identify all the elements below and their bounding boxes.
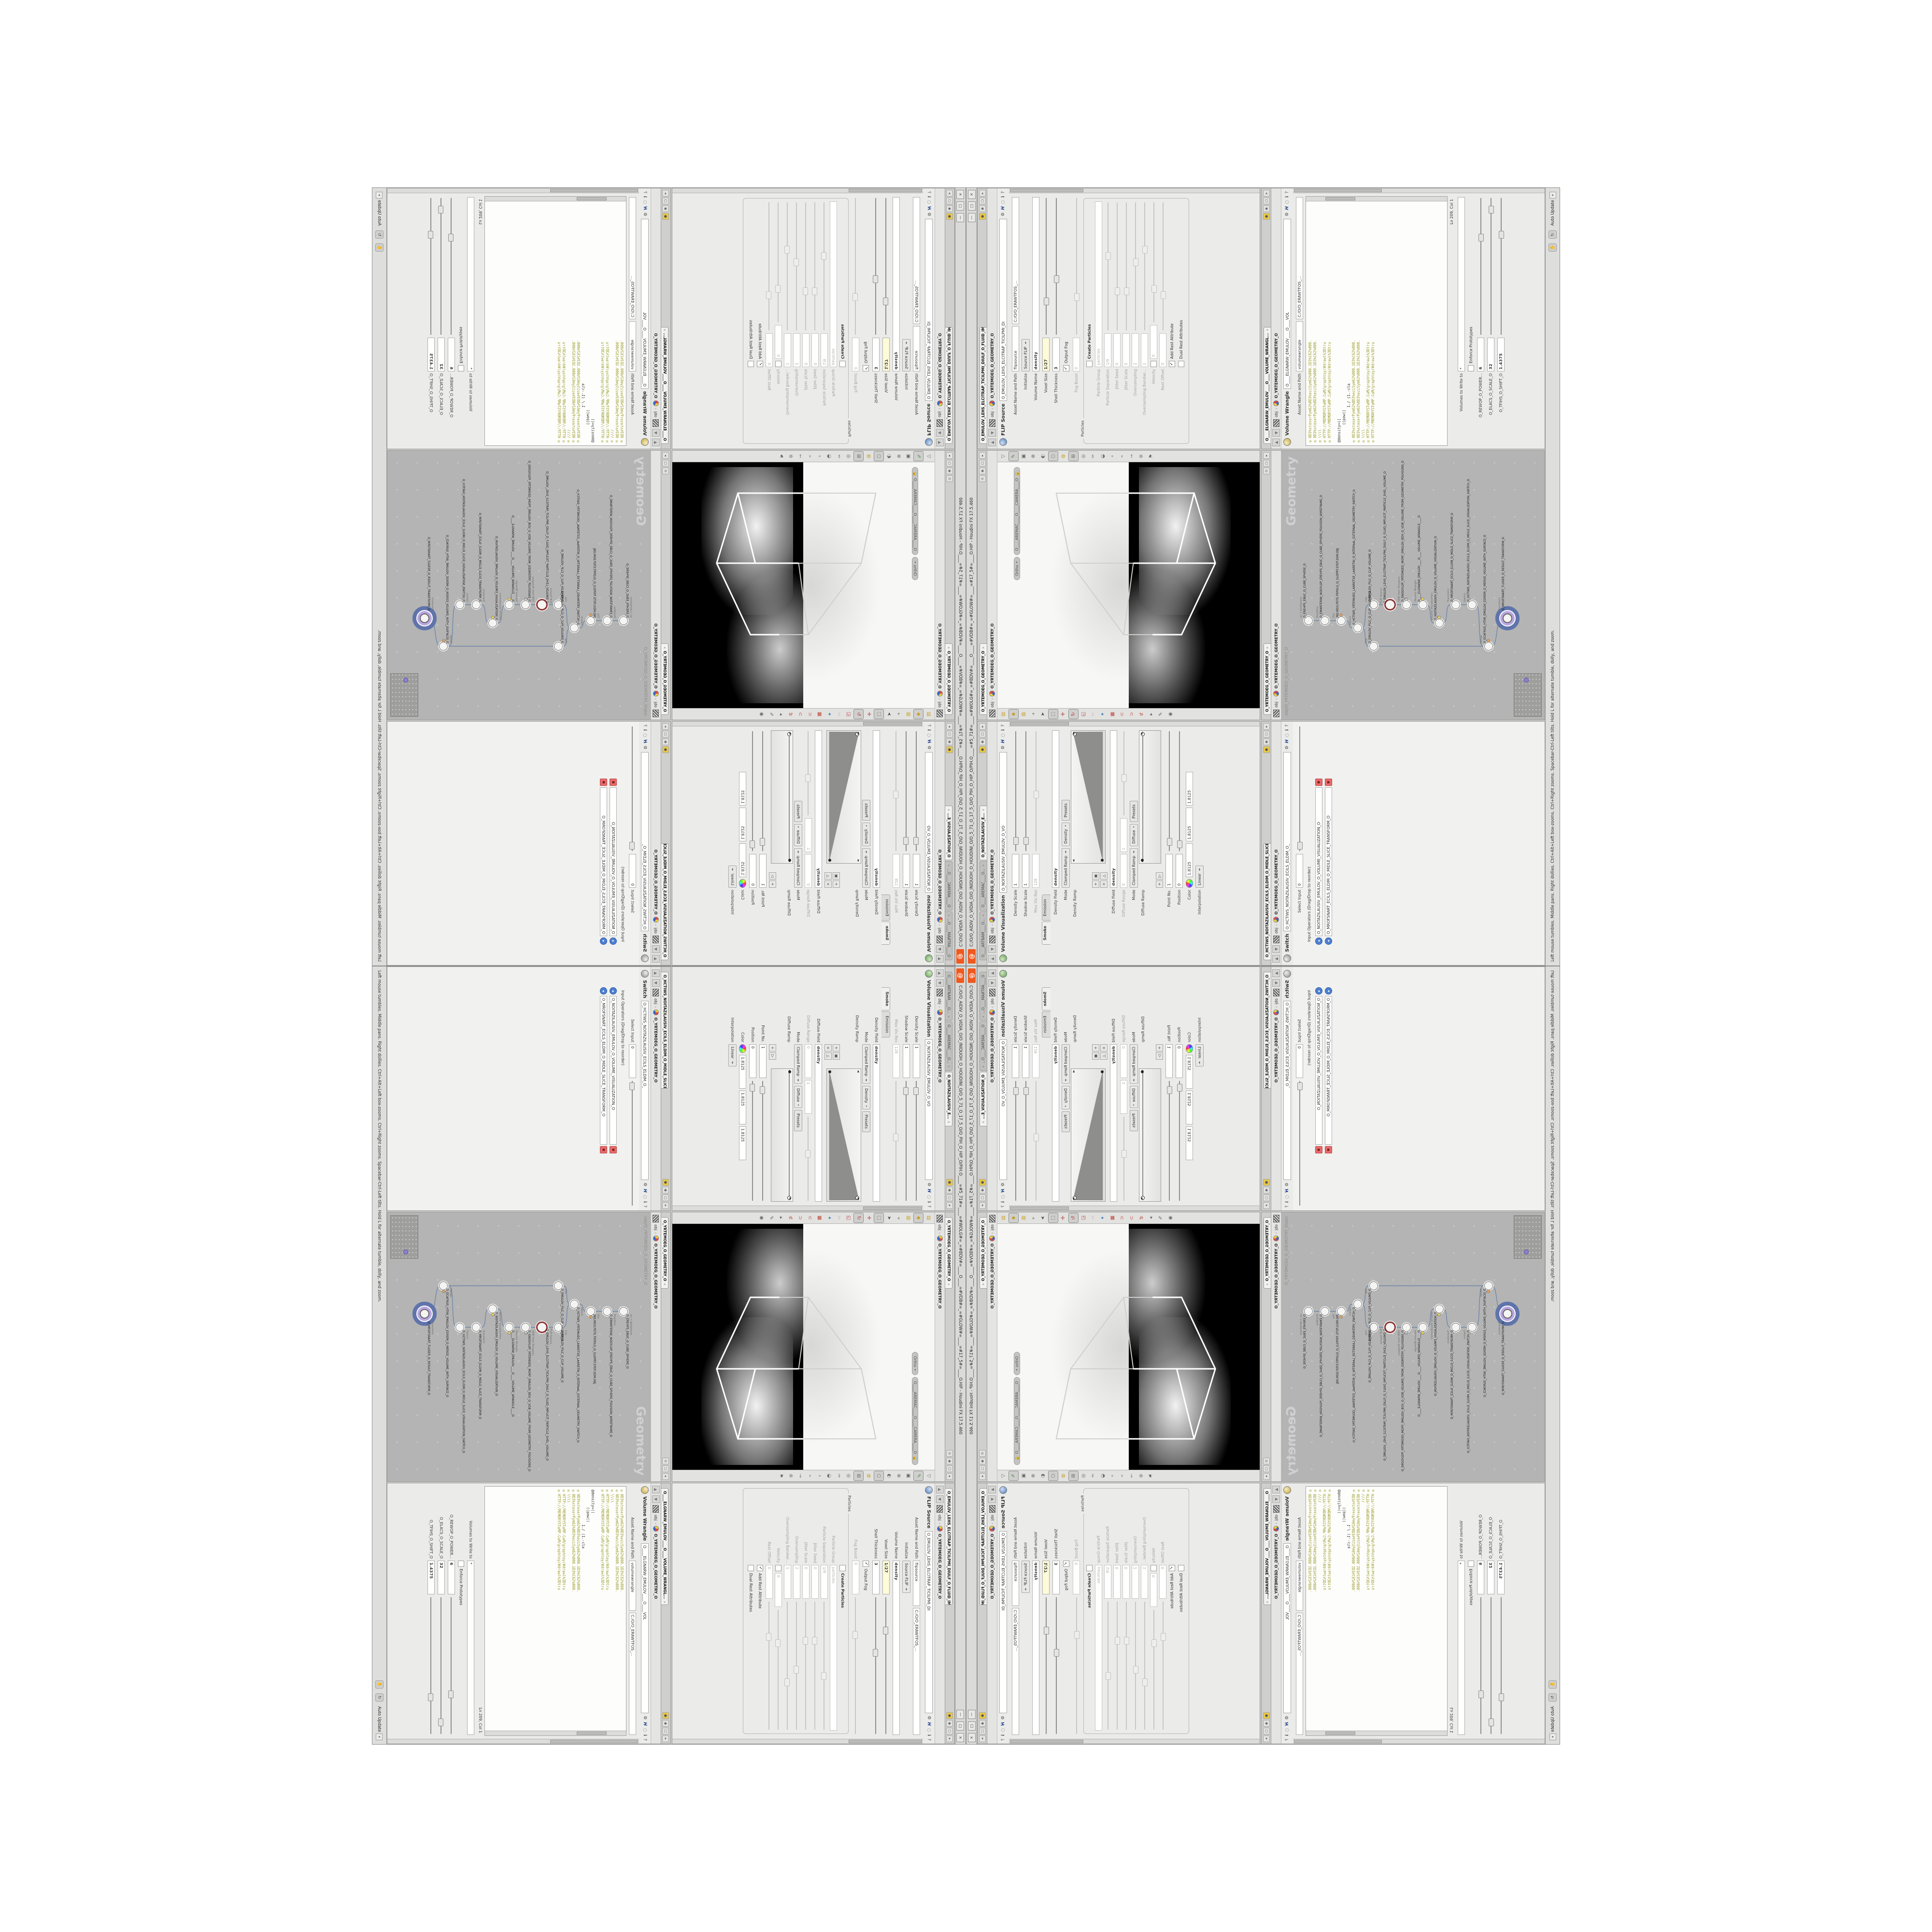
target-dropdown[interactable]: Density▾ [1062, 823, 1070, 846]
param-field[interactable]: 32 [438, 338, 445, 371]
pane-controls[interactable]: ●◉▢▸ [1263, 1179, 1271, 1209]
axis-tool-icon[interactable]: ✦ [824, 710, 834, 719]
search-icon[interactable]: ◌ [642, 733, 647, 737]
nav-down-icon[interactable]: ▼ [1272, 945, 1280, 953]
pane-tab[interactable]: O_YRTEMOEG_O_GEOMETRY_O✕ [980, 1217, 987, 1289]
rotate-tool-icon[interactable]: ↻ [853, 1213, 864, 1223]
initialize-dropdown[interactable]: Source FLIP◂▸ [1022, 339, 1030, 371]
palette-display-icon[interactable]: ◒ [1098, 452, 1108, 461]
target-icon[interactable]: ◉ [979, 468, 986, 474]
param-slider[interactable] [750, 1080, 756, 1202]
param-field[interactable]: 1/9 [1104, 1565, 1111, 1599]
scrollbar[interactable] [1009, 722, 1260, 726]
wrench-options-icon[interactable]: ⌁ [1118, 1471, 1127, 1480]
breadcrumb-root[interactable]: obj [938, 928, 942, 934]
pane-menu-icon[interactable]: ▸ [979, 1202, 986, 1209]
interpolation-dropdown[interactable]: Linear◂▸ [728, 1044, 737, 1066]
maximize-pane-icon[interactable]: ▢ [1263, 731, 1270, 738]
dual-rest-checkbox[interactable] [1178, 1565, 1184, 1571]
play-more-icon[interactable]: ▸ [1147, 710, 1156, 719]
pane-tab[interactable]: O____AREMAC____O...✕ [945, 1022, 952, 1070]
scrollbar[interactable] [672, 1739, 923, 1744]
tab-close-icon[interactable]: ✕ [947, 1121, 950, 1123]
node-flag-icon[interactable] [1437, 1313, 1441, 1316]
camera-pill[interactable]: O____AREMAC____O____CAMERA____O🔒 [912, 467, 918, 555]
gear-icon[interactable]: ⚙ [1001, 746, 1006, 750]
ramp-grid-icon[interactable]: ▣ [833, 872, 840, 880]
target-dropdown[interactable]: Density▾ [862, 823, 870, 846]
pane-tab[interactable]: O_YRTEMOEG_O_GEOMETRY_O✕ [945, 1217, 952, 1289]
breadcrumb-node[interactable]: O_YRTEMOEG_O_GEOMETRY_O [990, 850, 994, 915]
param-field[interactable]: 3 [1052, 1561, 1060, 1594]
nav-up-icon[interactable]: ▲ [936, 1486, 944, 1493]
breadcrumb-node[interactable]: O_YRTEMOEG_O_GEOMETRY_O [938, 1534, 942, 1599]
snap-multi-icon[interactable]: ⊄ [786, 710, 795, 719]
param-slider[interactable] [1114, 1601, 1121, 1731]
info-icon[interactable]: ℹ [926, 729, 931, 731]
pane-menu-icon[interactable]: ▸ [946, 1473, 953, 1480]
snap-grid-icon[interactable]: ▦ [815, 1213, 824, 1222]
snap-point-icon[interactable]: ⊂ [805, 1213, 814, 1222]
maximize-pane-icon[interactable]: ▢ [979, 731, 986, 738]
param-field[interactable]: 1 [1012, 1044, 1019, 1078]
add-rest-checkbox[interactable]: ✓ [757, 1565, 763, 1571]
param-field[interactable]: 0 [811, 333, 819, 367]
pin-icon[interactable]: ⊙ [946, 475, 953, 482]
minimize-button[interactable]: — [957, 1710, 965, 1719]
collapse-tri-icon[interactable]: ▽ [924, 1471, 933, 1480]
breadcrumb-root[interactable]: obj [654, 1224, 658, 1230]
network-node[interactable]: Volume VisualizationO_NOITAZILAUSIV_EMUL… [1435, 619, 1444, 627]
layout-icon[interactable]: ● [979, 213, 986, 220]
pin-icon[interactable]: ⊙ [1263, 1458, 1270, 1464]
update-mode-selector[interactable]: Auto Update▾ [1549, 1706, 1556, 1740]
node-name-field[interactable]: O_EMULOV_LEHS_ELCITRAP_TICILPMI_DI [999, 219, 1007, 401]
mode-dropdown[interactable]: Clamped Ramp◂▸ [794, 848, 802, 888]
param-field[interactable]: 2 [793, 333, 800, 367]
scrollbar[interactable] [387, 1739, 639, 1744]
asset-path-field[interactable]: C:/O/O_ERAWTFOS_... [1012, 1608, 1019, 1735]
param-slider[interactable] [760, 730, 767, 852]
presets-button[interactable]: Presets [794, 801, 802, 822]
asset-name-field[interactable]: volumewrangle [1296, 1561, 1303, 1611]
param-slider[interactable] [438, 1596, 445, 1735]
color-g-field[interactable]: 1.8125 [739, 1091, 746, 1124]
tab-close-icon[interactable]: ✕ [947, 1283, 950, 1286]
houdini-help-icon[interactable]: H [1001, 206, 1006, 210]
lock-camera-icon[interactable]: ▣ [1019, 1471, 1028, 1480]
param-field[interactable]: 0 [1122, 333, 1130, 367]
search-icon[interactable]: ◌ [926, 200, 931, 204]
help-icon[interactable]: ? [926, 1738, 931, 1741]
network-node[interactable]: an_CubeSphereO_EREHPS_EBUC_O_CUBE_SPHERE… [619, 1307, 628, 1316]
scale-tool-icon[interactable]: ◱ [844, 710, 853, 719]
density-ramp-widget[interactable]: ◄► [826, 730, 861, 864]
param-field[interactable]: 0 [1150, 1573, 1157, 1607]
network-node[interactable]: TransformO_MROFSNART_ECILS_ELDIM_O_MIDLE… [472, 1323, 481, 1332]
create-particles-checkbox[interactable] [839, 361, 846, 367]
param-field[interactable]: 2 [1132, 333, 1139, 367]
nav-down-icon[interactable]: ▼ [936, 945, 944, 953]
asset-path-field[interactable]: C:/O/O_ERAWTFOS_... [629, 1613, 636, 1735]
headlight-icon[interactable]: ◍ [1059, 452, 1068, 461]
param-field[interactable]: 0 [1296, 854, 1303, 888]
maximize-pane-icon[interactable]: ▢ [946, 731, 953, 738]
camera-pill[interactable]: O____AREMAC____O____CAMERA____O🔒 [1014, 1377, 1020, 1465]
interpolation-dropdown[interactable]: Linear◂▸ [728, 866, 737, 888]
pane-controls[interactable]: ●◉▢▸ [979, 190, 987, 220]
scrollbar[interactable] [672, 1206, 923, 1210]
param-field[interactable]: 1 [805, 818, 812, 852]
param-slider[interactable] [805, 1116, 812, 1202]
flag-display-icon[interactable]: ⚑ [1147, 452, 1156, 461]
mode-dropdown[interactable]: Clamped Ramp◂▸ [794, 1044, 802, 1084]
scrollbar[interactable] [1009, 1206, 1260, 1210]
scrollbar[interactable] [672, 722, 923, 726]
maximize-pane-icon[interactable]: ▢ [946, 460, 953, 467]
param-field[interactable]: density [1052, 1044, 1059, 1202]
operator-path-field[interactable]: O_MROFSNART_ECILS_ELDIM_O_MIDLE_SLICE_TR… [600, 787, 608, 936]
enforce-prototypes-checkbox[interactable] [1468, 365, 1474, 371]
sketch-render-icon[interactable]: ✎ [767, 710, 776, 719]
flat-sphere-icon[interactable]: ○ [874, 1471, 884, 1481]
pane-tab[interactable]: O_EMULOV_LEHS_ELCITRAP_TICILPMI_DIULF_O_… [945, 1488, 952, 1605]
asset-path-field[interactable]: C:/O/O_ERAWTFOS_... [1296, 1613, 1303, 1735]
help-icon[interactable]: ? [1001, 724, 1006, 727]
probe-options-icon[interactable]: ⊸ [1127, 1471, 1136, 1480]
pane-tab[interactable]: O_NOITAZILAUSIV_E...✕ [945, 1072, 952, 1126]
pane-menu-icon[interactable]: ▸ [946, 1202, 953, 1209]
asset-name-field[interactable]: volumewrangle [629, 1561, 636, 1611]
breadcrumb-node[interactable]: O_YRTEMOEG_O_GEOMETRY_O [990, 1243, 994, 1308]
reorder-icon[interactable]: ◂ [600, 938, 608, 945]
param-slider[interactable] [913, 730, 920, 852]
flag-display-icon[interactable]: ⚑ [776, 452, 785, 461]
nav-up-icon[interactable]: ▲ [988, 969, 996, 977]
param-field[interactable]: 1/27 [882, 338, 890, 371]
info-icon[interactable]: ℹ [642, 1201, 647, 1203]
pane-tab[interactable]: O_YRTEMOEG_O_GEOMETRY_O✕ [980, 643, 987, 715]
nav-down-icon[interactable]: ▼ [936, 429, 944, 437]
breadcrumb-root[interactable]: obj [1274, 1224, 1279, 1230]
diffuse-ramp-widget[interactable]: ◄► [771, 1068, 793, 1202]
param-field[interactable]: 3 [872, 1561, 880, 1594]
param-slider[interactable] [766, 1601, 773, 1731]
network-node[interactable]: ClipO_EMULOV_PILC_O_CLIP_VOLUME_O [554, 1281, 563, 1290]
help-icon[interactable]: ? [1285, 724, 1290, 727]
orbit-view-icon[interactable]: ◎ [844, 1471, 853, 1480]
help-icon[interactable]: ? [1285, 191, 1290, 194]
add-rest-checkbox[interactable]: ✓ [1169, 361, 1175, 367]
link-icon[interactable]: ◉ [662, 205, 669, 212]
info-icon[interactable]: ℹ [1285, 196, 1290, 198]
param-slider[interactable] [1073, 197, 1080, 336]
search-icon[interactable]: ◌ [1285, 733, 1290, 737]
layout-pane-icon[interactable]: ▤ [924, 1213, 933, 1222]
breadcrumb-node[interactable]: O_YRTEMOEG_O_GEOMETRY_O [654, 333, 658, 398]
lock-camera-icon[interactable]: ▣ [904, 452, 913, 461]
tab-close-icon[interactable]: ✕ [663, 646, 666, 649]
param-field[interactable]: density [1032, 197, 1039, 371]
layout-pane-icon[interactable]: ▤ [999, 1213, 1008, 1222]
nav-down-icon[interactable]: ▼ [652, 429, 660, 437]
tab-close-icon[interactable]: ✕ [947, 914, 950, 917]
network-node[interactable]: FLIP SourceO_EMULOV_LEHS_ELCITRAP_TICILP… [536, 599, 548, 611]
param-field[interactable]: 1 [1141, 333, 1148, 367]
info-icon[interactable]: ℹ [1001, 1734, 1006, 1736]
layout-diamond-icon[interactable]: ◆ [913, 709, 923, 719]
param-field[interactable]: 1 [1165, 1044, 1173, 1078]
node-name-field[interactable]: O____ELGNARW_EMULOV____O____VOL [1283, 219, 1291, 389]
param-slider[interactable] [1160, 201, 1166, 331]
orbit-view-icon[interactable]: ◎ [1079, 1471, 1088, 1480]
breadcrumb-root[interactable]: obj [1274, 928, 1279, 934]
param-field[interactable]: 1/9 [821, 1565, 828, 1599]
link-icon[interactable]: ◉ [979, 739, 986, 745]
enforce-prototypes-checkbox[interactable] [1468, 1561, 1474, 1567]
brush-display-icon[interactable]: ✑ [1089, 1471, 1098, 1480]
maximize-pane-icon[interactable]: ▢ [946, 198, 953, 204]
param-slider[interactable] [784, 201, 791, 331]
translate-tool-icon[interactable]: ✛ [864, 1213, 873, 1222]
remove-operator-icon[interactable]: ✖ [600, 1146, 608, 1153]
link-icon[interactable]: ◉ [1263, 1187, 1270, 1193]
breadcrumb-root[interactable]: obj [938, 412, 942, 417]
add-rest-checkbox[interactable]: ✓ [1169, 1565, 1175, 1571]
info-icon[interactable]: ℹ [642, 729, 647, 731]
param-slider[interactable] [1114, 201, 1121, 331]
back-arrow-icon[interactable]: ◂ [1029, 1213, 1038, 1222]
projection-pill[interactable]: Ortho▾ [1014, 1352, 1020, 1375]
asset-name-field[interactable]: flipsource [1012, 326, 1019, 371]
orbit-view-icon[interactable]: ◎ [844, 452, 853, 461]
network-node[interactable]: TransformO_MROFSNART_TLUSER_O_RESULT_TRA… [420, 613, 429, 623]
pane-controls[interactable]: ●◉▢▸ [979, 723, 987, 753]
minimize-button[interactable]: — [968, 1710, 976, 1719]
gear-icon[interactable]: ⚙ [926, 213, 931, 216]
param-field[interactable]: 1.4375 [427, 338, 435, 371]
param-field[interactable]: 128 [1032, 854, 1039, 888]
update-mode-selector[interactable]: Auto Update▾ [376, 192, 383, 226]
param-slider[interactable] [1023, 1080, 1029, 1202]
remove-operator-icon[interactable]: ✖ [610, 779, 617, 786]
reorder-icon[interactable]: ◂ [610, 987, 617, 994]
param-field[interactable]: 128 [893, 854, 900, 888]
param-slider[interactable] [1073, 1596, 1080, 1735]
network-node[interactable]: PolyWireO_EMARFERIW_NOGYLOP_EREHPS_EBUC_… [1321, 1307, 1329, 1316]
maximize-pane-icon[interactable]: ▢ [946, 1465, 953, 1472]
nav-down-icon[interactable]: ▼ [988, 429, 996, 437]
network-node[interactable]: PolyWireO_EMARFERIW_NOGYLOP_EREHPS_EBUC_… [603, 1307, 611, 1316]
maximize-pane-icon[interactable]: ▢ [1263, 1728, 1270, 1734]
gear-icon[interactable]: ⚙ [1285, 1182, 1290, 1186]
pane-menu-icon[interactable]: ▸ [1263, 723, 1270, 730]
snip-tool-icon[interactable]: ✂ [834, 710, 843, 719]
pane-tab[interactable]: O_YRTEMOEG_O_GEOMETRY_O✕ [1264, 1217, 1271, 1289]
node-flag-icon[interactable] [491, 616, 495, 619]
node-name-field[interactable]: O_EMULOV_LEHS_ELCITRAP_TICILPMI_DI [999, 1531, 1007, 1714]
play-more-icon[interactable]: ▸ [776, 1213, 785, 1222]
pin-icon[interactable]: ⊙ [662, 1458, 669, 1464]
node-name-field[interactable]: O_HCTIWS_NOITAZILAUSIV_ECILS_ELDIM_O_ [641, 752, 649, 932]
ramp-add-icon[interactable]: + [769, 1044, 776, 1051]
network-node[interactable]: PolyWireO_EMARFERIW_NOGYLOP_EREHPS_EBUC_… [603, 616, 611, 625]
network-minimap[interactable] [390, 1215, 418, 1259]
pane-controls[interactable]: ⊙◉▢▸ [945, 452, 953, 482]
scrollbar[interactable] [1293, 1739, 1545, 1744]
color-r-field[interactable]: 1.8125 [1186, 843, 1193, 877]
color-b-field[interactable]: 1.8125 [739, 772, 746, 806]
reorder-icon[interactable]: ◂ [610, 938, 617, 945]
network-node[interactable]: Volume WrangleO____ELGNARW_EMULOV____O__… [505, 1323, 513, 1332]
tab-close-icon[interactable]: ✕ [663, 329, 666, 331]
network-node[interactable]: TransformO_MROFSNART_ECILS_ELDIM_O_MIDLE… [1451, 600, 1460, 609]
scale-tool-icon[interactable]: ◱ [844, 1213, 853, 1222]
pane-controls[interactable]: ⊙◉▢▸ [945, 1450, 953, 1480]
presets-button[interactable]: Presets [794, 1110, 802, 1131]
snap-grid-icon[interactable]: ▦ [1108, 1213, 1117, 1222]
node-flag-icon[interactable] [1421, 1331, 1424, 1335]
param-slider[interactable] [1053, 1596, 1060, 1735]
link-icon[interactable]: ◉ [1263, 205, 1270, 212]
tab-close-icon[interactable]: ✕ [663, 1283, 666, 1286]
nav-up-icon[interactable]: ▲ [1272, 1486, 1280, 1493]
flipbook-render-icon[interactable]: ◉ [1166, 1213, 1175, 1222]
pane-menu-icon[interactable]: ▸ [979, 452, 986, 459]
color-swatch[interactable] [1186, 1044, 1193, 1053]
tab-emission[interactable]: Emission [1042, 1011, 1051, 1037]
pane-tab[interactable]: O_NOITAZILAUSIV_E...✕ [945, 806, 952, 860]
presets-button[interactable]: Presets [1130, 801, 1138, 822]
param-slider[interactable] [1023, 730, 1029, 852]
layout-icon[interactable]: ● [946, 1179, 953, 1186]
maximize-pane-icon[interactable]: ▢ [979, 198, 986, 204]
palette-display-icon[interactable]: ◒ [824, 452, 834, 461]
param-slider[interactable] [1160, 1601, 1166, 1731]
breadcrumb-root[interactable]: obj [990, 702, 994, 708]
gear-icon[interactable]: ⚙ [642, 1182, 647, 1186]
param-slider[interactable] [794, 201, 800, 331]
param-slider[interactable] [852, 1596, 859, 1735]
probe-options-icon[interactable]: ⊸ [796, 1471, 805, 1480]
link-icon[interactable]: ◉ [946, 205, 953, 212]
sketch-render-icon[interactable]: ✎ [1156, 1213, 1165, 1222]
houdini-help-icon[interactable]: H [926, 739, 931, 743]
pin-icon[interactable]: ⊙ [946, 1450, 953, 1457]
palette-display-icon[interactable]: ◒ [1098, 1471, 1108, 1480]
layout-pane-icon[interactable]: ▤ [999, 710, 1008, 719]
node-name-field[interactable]: O_NOITAZILAUSIV_EMULOV_O_VO [925, 752, 933, 893]
layout-icon[interactable]: ● [1263, 1179, 1270, 1186]
param-field[interactable]: density [815, 1044, 822, 1202]
network-canvas[interactable]: /obj/O_YRTEMOEG_O_GEOMETRY_O Geometry an… [1281, 1212, 1545, 1481]
scrollbar[interactable] [1293, 188, 1545, 193]
ramp-grid-icon[interactable]: ▣ [1092, 1052, 1099, 1060]
pane-tab[interactable]: O____AREMAC____O...✕ [980, 1022, 987, 1070]
velocity-checkbox[interactable] [1151, 361, 1157, 367]
input-operator-row[interactable]: ◂O_MROFSNART_ECILS_ELDIM_O_MIDLE_SLICE_T… [1323, 968, 1333, 1209]
target-dropdown[interactable]: Diffuse▾ [1130, 824, 1138, 846]
pane-tab[interactable]: O_NOITAZILAUSIV_E...✕ [980, 1072, 987, 1126]
breadcrumb-node[interactable]: O_YRTEMOEG_O_GEOMETRY_O [938, 333, 942, 398]
search-icon[interactable]: ◌ [642, 1195, 647, 1199]
remove-operator-icon[interactable]: ✖ [610, 1146, 617, 1153]
reorder-icon[interactable]: ◂ [1315, 987, 1322, 994]
network-node[interactable]: MergeO_ECAFRUS_HTIW_EMULOV_EGREM_O_MERGE… [1484, 642, 1493, 651]
dual-rest-checkbox[interactable] [748, 361, 754, 367]
tab-close-icon[interactable]: ✕ [947, 864, 950, 867]
input-operator-row[interactable]: ◂O_NOITAZILAUSIV_EMULOV_O_VOLUME_VISUALI… [1314, 723, 1323, 964]
param-slider[interactable] [1488, 197, 1494, 336]
recook-icon[interactable]: ↻ [375, 230, 384, 239]
deselect-icon[interactable]: ⊗ [894, 452, 903, 461]
search-icon[interactable]: ◌ [1001, 200, 1006, 204]
param-field[interactable]: 6 [1477, 338, 1484, 371]
remove-operator-icon[interactable]: ✖ [1325, 1146, 1332, 1153]
color-swatch[interactable] [739, 1044, 746, 1053]
pane-controls[interactable]: ●◉▢▸ [661, 1712, 669, 1742]
breadcrumb-node[interactable]: O_YRTEMOEG_O_GEOMETRY_O [654, 624, 658, 689]
flat-sphere-icon[interactable]: ○ [874, 451, 884, 461]
color-b-field[interactable]: 1.8125 [1186, 772, 1193, 806]
houdini-help-icon[interactable]: H [1285, 1189, 1290, 1193]
param-field[interactable]: 0 [1120, 854, 1127, 888]
pane-controls[interactable]: ●◉▢▸ [945, 1179, 953, 1209]
nav-down-icon[interactable]: ▼ [652, 1495, 660, 1503]
pane-menu-icon[interactable]: ▸ [1263, 452, 1270, 459]
lasso-select-icon[interactable]: ⬚ [1048, 709, 1058, 719]
gear-icon[interactable]: ⚙ [926, 746, 931, 750]
pin-icon[interactable]: ⊙ [979, 1450, 986, 1457]
snip-tool-icon[interactable]: ✂ [834, 1213, 843, 1222]
flipbook-render-icon[interactable]: ◉ [757, 1213, 766, 1222]
maximize-pane-icon[interactable]: ▢ [662, 731, 669, 738]
maximize-pane-icon[interactable]: ▢ [1263, 198, 1270, 204]
nav-up-icon[interactable]: ▲ [988, 1486, 996, 1493]
pane-menu-icon[interactable]: ▸ [946, 452, 953, 459]
translate-tool-icon[interactable]: ✛ [1059, 710, 1068, 719]
help-icon[interactable]: ? [926, 191, 931, 194]
network-node[interactable]: FLIP SourceO_EMULOV_LEHS_ELCITRAP_TICILP… [1384, 599, 1396, 611]
ramp-flip-icon[interactable]: △ [824, 1052, 832, 1060]
pane-controls[interactable]: ⊙◉▢▸ [979, 452, 987, 482]
param-field[interactable]: 0 [1122, 1565, 1130, 1599]
manual-cook-icon[interactable]: ✋ [1548, 1680, 1557, 1689]
param-slider[interactable] [812, 201, 819, 331]
param-slider[interactable] [629, 1080, 636, 1207]
maximize-pane-icon[interactable]: ▢ [1263, 460, 1270, 467]
network-node[interactable]: MergeO_ECAFRUS_HTIW_EMULOV_EGREM_O_MERGE… [439, 1281, 448, 1290]
layout-icon[interactable]: ● [979, 1712, 986, 1719]
ramp-delete-icon[interactable]: × [824, 881, 832, 888]
houdini-help-icon[interactable]: H [642, 1189, 647, 1193]
pane-controls[interactable]: ●◉▢▸ [945, 723, 953, 753]
nav-up-icon[interactable]: ▲ [936, 969, 944, 977]
nav-down-icon[interactable]: ▼ [988, 1495, 996, 1503]
search-icon[interactable]: ◌ [1001, 1195, 1006, 1199]
pane-tab[interactable]: O____ELGNARW_EMULOV____O____VOLUME_WRANG… [1264, 327, 1271, 444]
maximize-button[interactable]: ▢ [957, 1721, 965, 1731]
frame-view-icon[interactable]: ⊞ [853, 1471, 864, 1481]
collapse-tri-icon[interactable]: ▽ [924, 452, 933, 461]
network-node[interactable]: TransformO_MROFSNART_TLUSER_O_RESULT_TRA… [1503, 613, 1512, 623]
info-icon[interactable]: ℹ [1285, 1734, 1290, 1736]
interpolation-dropdown[interactable]: Linear◂▸ [1195, 1044, 1204, 1066]
tab-close-icon[interactable]: ✕ [982, 646, 985, 649]
recook-icon[interactable]: ↻ [375, 1693, 384, 1702]
pin-icon[interactable]: ⊙ [1263, 468, 1270, 474]
asset-name-field[interactable]: flipsource [913, 326, 920, 371]
